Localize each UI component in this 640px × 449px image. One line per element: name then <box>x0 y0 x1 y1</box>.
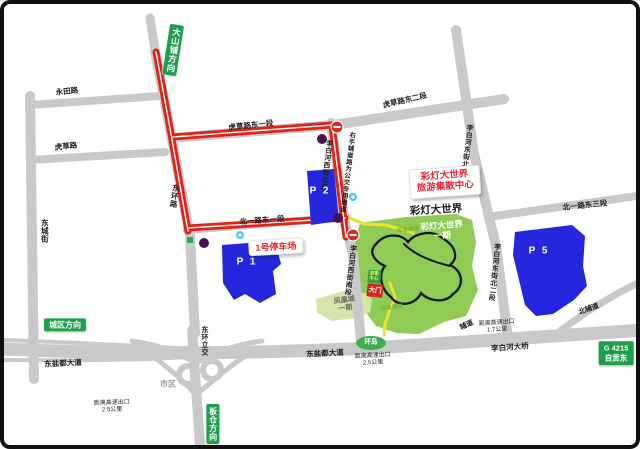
road-yongtian <box>30 96 160 105</box>
tourist-hub-callout: 彩灯大世界 旅游集散中心 <box>409 165 482 200</box>
exit-distance-value: 2.5公里 <box>94 406 130 414</box>
checkpoint-dot <box>199 238 209 248</box>
exit-distance-note-25-center: 距离高速出口 2.5公里 <box>355 352 392 368</box>
sign-bancang-direction: 板仓方向 <box>206 404 219 444</box>
bus-stop-icon <box>236 231 245 240</box>
exit-distance-note-25-west: 距离高速出口 2.5公里 <box>94 399 130 414</box>
bus-stop-icon <box>349 193 358 202</box>
checkpoint-dot <box>333 213 343 223</box>
parking-p5-label: P 5 <box>529 245 550 257</box>
label-shiqu: 市区 <box>160 379 176 388</box>
fenghuang-label: 凤凰城 一期 <box>333 296 356 315</box>
road-map-svg <box>4 4 640 449</box>
sign-g4215-code: G 4215 <box>604 343 629 353</box>
parking-p1-label: P 1 <box>237 256 258 268</box>
road-dongcheng-street <box>30 96 34 379</box>
road-hucao <box>30 152 165 160</box>
sign-g4215: G 4215 自贡东 <box>599 341 634 365</box>
visitor-center-label: 游客 中心 <box>369 270 379 282</box>
road-label-dongcheng: 东城街 <box>40 219 49 243</box>
parking-p1-callout: 1号停车场 <box>248 237 304 256</box>
exit-distance-note-17: 距离高速出口 1.7公里 <box>479 319 516 335</box>
road-label-donghuan-lijiao: 东环立交 <box>200 326 208 356</box>
sign-chengqu-direction: 城区方向 <box>44 318 86 331</box>
sign-g4215-dest: 自贡东 <box>604 353 629 363</box>
parking-p5-polygon <box>513 225 587 316</box>
road-north-stub <box>150 18 155 49</box>
map-canvas: 大山铺方向 城区方向 板仓方向 G 4215 自贡东 永田路 虎草路 东城街 东… <box>0 0 640 449</box>
tourist-hub-line2: 旅游集散中心 <box>417 180 475 195</box>
gate-label: 大门 <box>368 287 382 296</box>
entrance-marker-green <box>187 237 193 243</box>
no-entry-icon <box>347 229 359 241</box>
park-name-inside: 彩灯大世界 一期 <box>420 220 464 242</box>
visitor-center-line2: 中心 <box>369 276 379 282</box>
parking-p2-label: P 2 <box>310 185 331 197</box>
no-entry-icon <box>331 121 343 133</box>
label-huandao: 环岛 <box>365 338 378 345</box>
